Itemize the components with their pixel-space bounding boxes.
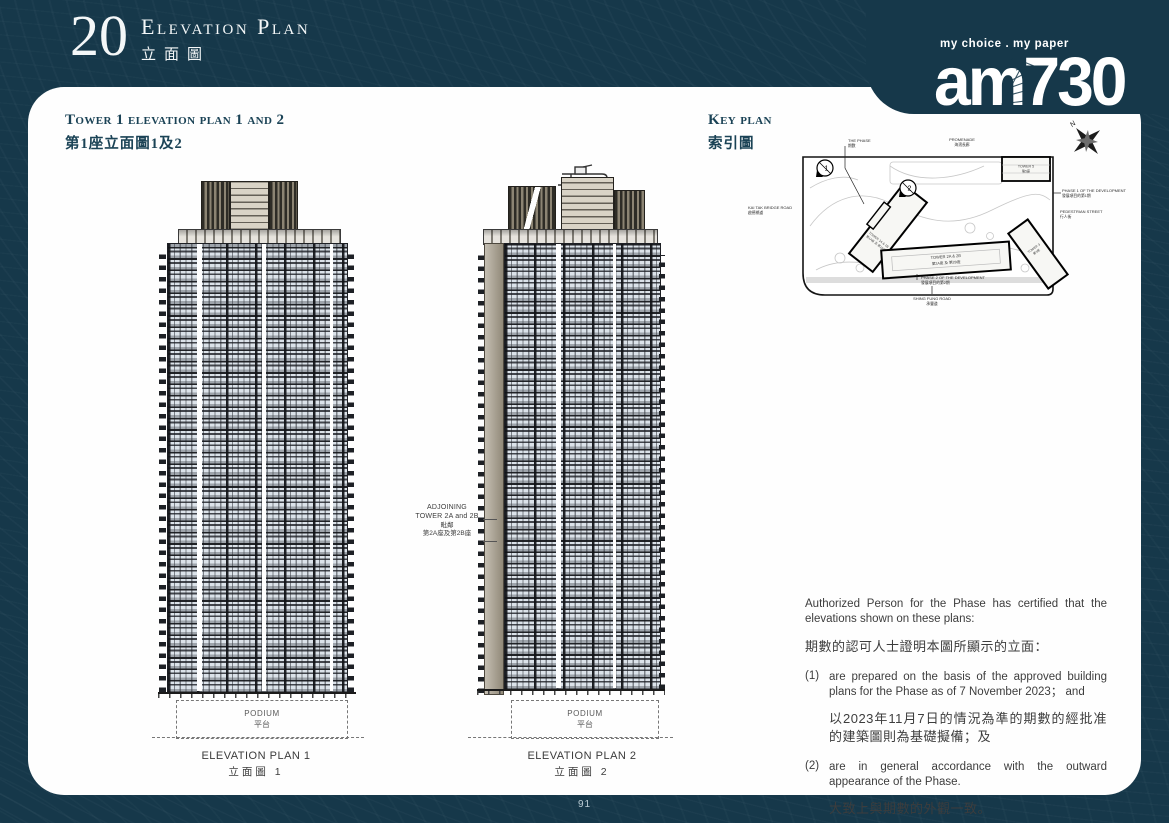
elevation-1-view-marker: 1 [816,160,833,177]
tower1-podium-label-en: PODIUM [244,709,280,718]
svg-text:PROMENADE: PROMENADE [949,137,975,142]
elevation-plan-2-caption: ELEVATION PLAN 2 立面圖 2 [502,750,662,779]
tower1-roof-structure [201,181,298,231]
section-number: 20 [70,4,128,68]
svg-text:發展項目的第1期: 發展項目的第1期 [1062,193,1091,198]
elevation-plan-2-caption-zh: 立面圖 2 [502,764,662,779]
svg-text:PHASE 1 OF THE DEVELOPMENT: PHASE 1 OF THE DEVELOPMENT [1062,188,1126,193]
svg-text:KAI TAK BRIDGE ROAD: KAI TAK BRIDGE ROAD [748,205,792,210]
svg-text:海濱長廊: 海濱長廊 [954,142,969,147]
cert-item-1: (1) are prepared on the basis of the app… [805,670,1107,747]
svg-text:SHING FUNG ROAD: SHING FUNG ROAD [913,296,951,301]
elevation-2-view-marker: 2 [899,180,916,197]
svg-text:1: 1 [825,166,829,173]
tower2-roof-block-right [614,190,645,232]
elevation-plan-2-caption-en: ELEVATION PLAN 2 [502,750,662,762]
svg-text:啟德橋道: 啟德橋道 [748,210,763,215]
cert-item2-en: are in general accordance with the outwa… [829,760,1107,790]
svg-text:TOWER 5: TOWER 5 [1018,165,1034,169]
elevation-plan-1-caption-zh: 立面圖 1 [166,764,346,779]
tower2-roof-block-mid [561,177,614,232]
tower1-title-zh: 第1座立面圖1及2 [65,132,284,153]
key-plan-map: N TOWER 1A & 1B 第1A座 及 第1B座 [740,108,1165,313]
svg-text:THE PHASE: THE PHASE [848,138,871,143]
tower1-podium-label-zh: 平台 [254,719,270,730]
elevation-plan-1-caption: ELEVATION PLAN 1 立面圖 1 [166,750,346,779]
tower2-podium-label-zh: 平台 [577,719,593,730]
building-tower5: TOWER 5 第5座 [1002,157,1050,181]
svg-text:PEDESTRIAN STREET: PEDESTRIAN STREET [1060,209,1103,214]
tower1-title-en: Tower 1 elevation plan 1 and 2 [65,112,284,129]
north-compass-icon: N [1058,111,1111,165]
svg-text:PHASE 2 OF THE DEVELOPMENT: PHASE 2 OF THE DEVELOPMENT [921,275,985,280]
tower2-facade [504,243,661,691]
svg-text:第5座: 第5座 [1022,169,1031,174]
page-number: 91 [0,799,1169,810]
tower1-facade [167,243,348,694]
svg-text:期數: 期數 [848,143,856,148]
tower2-podium-label-en: PODIUM [567,709,603,718]
am730-scribble-icon [994,56,1040,108]
tower1-podium-outline: PODIUM 平台 [176,700,348,739]
cert-item1-en: are prepared on the basis of the approve… [829,670,1107,700]
elevation-plan-1-caption-en: ELEVATION PLAN 1 [166,750,346,762]
tower2-right-balconies [659,255,665,689]
tower2-roof-block-left [508,186,556,232]
svg-text:行人街: 行人街 [1060,214,1072,219]
brochure-page: 20 Elevation Plan 立面圖 my choice . my pap… [0,0,1169,823]
svg-text:承豐道: 承豐道 [926,301,938,306]
tower1-section-title: Tower 1 elevation plan 1 and 2 第1座立面圖1及2 [65,112,284,153]
cert-intro-en: Authorized Person for the Phase has cert… [805,597,1107,627]
svg-text:N: N [1069,120,1078,129]
page-title: Elevation Plan 立面圖 [141,14,310,64]
certification-statement: Authorized Person for the Phase has cert… [805,597,1107,818]
cert-item1-zh: 以2023年11月7日的情況為準的期數的經批准的建築圖則為基礎擬備；及 [829,710,1107,748]
cert-intro-zh: 期數的認可人士證明本圖所顯示的立面： [805,638,1107,657]
svg-text:發展項目的第2期: 發展項目的第2期 [921,280,950,285]
page-title-en: Elevation Plan [141,14,310,40]
tower1-right-balconies [347,253,354,692]
adjoining-tower-silhouette [484,243,504,695]
page-title-zh: 立面圖 [141,43,310,64]
adjoining-tower-label: ADJOINING TOWER 2A and 2B 毗鄰 第2A座及第2B座 [411,504,483,538]
svg-text:2: 2 [908,186,912,193]
am730-logo: my choice . my paper am730 [934,38,1125,111]
tower1-left-balconies [159,253,166,692]
tower2-podium-outline: PODIUM 平台 [511,700,659,739]
